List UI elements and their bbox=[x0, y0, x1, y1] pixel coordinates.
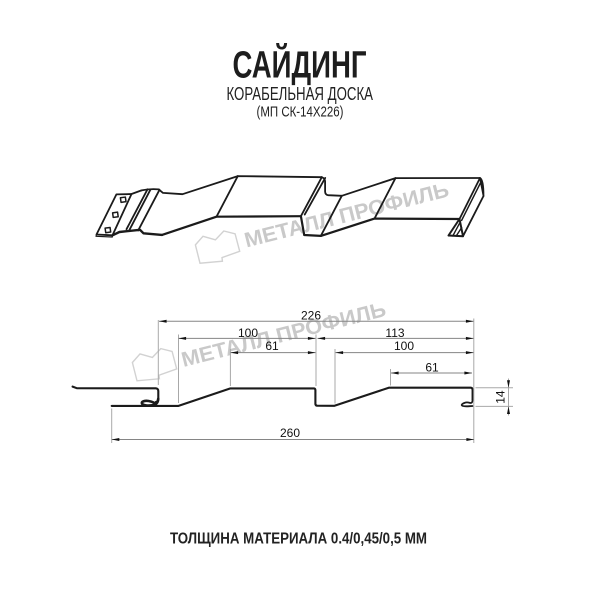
svg-text:САЙДИНГ: САЙДИНГ bbox=[233, 42, 367, 87]
svg-text:КОРАБЕЛЬНАЯ ДОСКА: КОРАБЕЛЬНАЯ ДОСКА bbox=[227, 84, 374, 104]
svg-text:226: 226 bbox=[301, 309, 321, 323]
svg-text:260: 260 bbox=[280, 426, 300, 440]
svg-text:(МП СК-14Х226): (МП СК-14Х226) bbox=[257, 105, 344, 121]
svg-text:100: 100 bbox=[394, 339, 414, 353]
svg-text:113: 113 bbox=[385, 326, 404, 340]
svg-text:ТОЛЩИНА МАТЕРИАЛА 0.4/0,45/0,5: ТОЛЩИНА МАТЕРИАЛА 0.4/0,45/0,5 ММ bbox=[170, 531, 427, 548]
svg-text:61: 61 bbox=[425, 360, 439, 374]
svg-text:14: 14 bbox=[494, 390, 508, 404]
svg-text:100: 100 bbox=[238, 326, 258, 340]
svg-text:61: 61 bbox=[265, 339, 279, 353]
